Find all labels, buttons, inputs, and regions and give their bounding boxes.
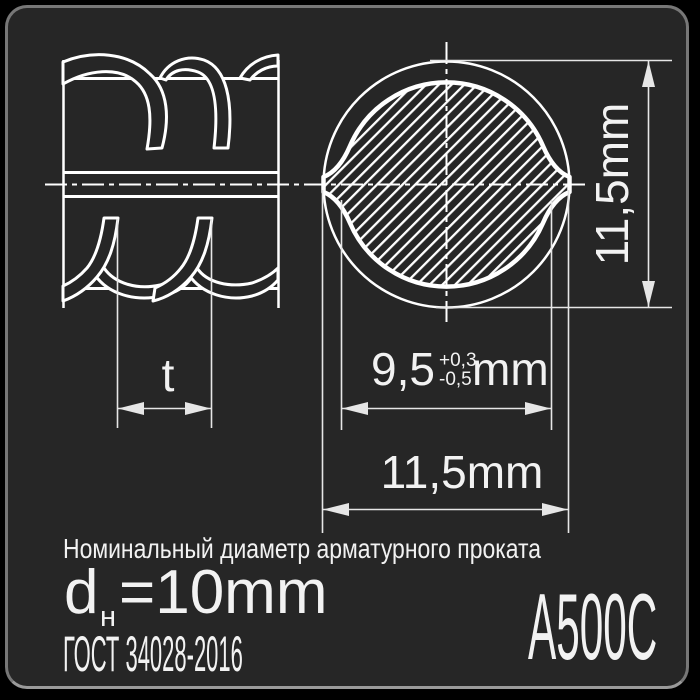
outer-diameter-label-bottom: 11,5mm <box>381 446 544 498</box>
transverse-rib <box>160 58 230 148</box>
dim-arrow-up <box>642 61 655 87</box>
core-diameter-label: 9,5 <box>371 343 435 395</box>
technical-drawing: t 9,5 +0,3 -0,5 mm 11,5mm 11,5mm Номинал… <box>0 0 700 700</box>
dim-arrow-left <box>323 503 349 516</box>
core-tolerance-plus: +0,3 <box>439 350 477 371</box>
dim-arrow-down <box>642 281 655 307</box>
transverse-rib <box>240 55 278 80</box>
diameter-value: =10mm <box>119 558 327 627</box>
outer-diameter-label-right: 11,5mm <box>586 103 638 266</box>
grade-label: А500С <box>528 575 657 679</box>
rebar-side-view <box>63 55 279 308</box>
transverse-ribs-top <box>63 55 278 149</box>
pitch-label: t <box>162 349 175 401</box>
standard-label: ГОСТ 34028-2016 <box>63 627 243 683</box>
core-tolerance-minus: -0,5 <box>439 369 472 390</box>
rib-skirt <box>189 268 278 298</box>
transverse-rib <box>63 55 166 149</box>
dim-arrow-right <box>525 402 551 415</box>
nominal-diameter: d н =10mm <box>64 558 327 633</box>
dim-arrow-left <box>118 402 144 415</box>
dim-arrow-right <box>185 402 211 415</box>
dim-arrow-right <box>542 503 568 516</box>
dim-arrow-left <box>342 402 368 415</box>
footer-block: Номинальный диаметр арматурного проката … <box>63 534 657 683</box>
core-unit-label: mm <box>472 343 549 395</box>
diameter-symbol: d <box>64 558 98 627</box>
